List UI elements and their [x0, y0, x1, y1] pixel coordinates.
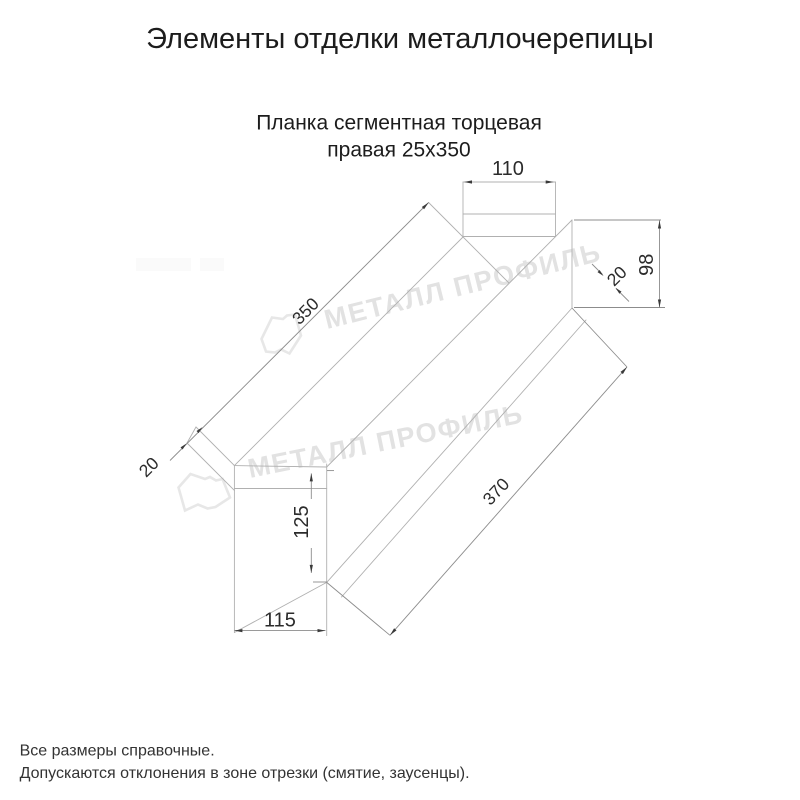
svg-text:Допускаются отклонения в зоне: Допускаются отклонения в зоне отрезки (с… [20, 765, 470, 782]
svg-text:98: 98 [636, 254, 658, 276]
svg-text:Все размеры справочные.: Все размеры справочные. [20, 743, 215, 760]
svg-text:Элементы отделки металлочерепи: Элементы отделки металлочерепицы [146, 23, 654, 55]
svg-text:125: 125 [291, 505, 313, 538]
svg-text:правая 25х350: правая 25х350 [327, 139, 470, 162]
svg-text:115: 115 [264, 610, 296, 632]
svg-text:Планка сегментная торцевая: Планка сегментная торцевая [256, 112, 542, 135]
svg-text:110: 110 [492, 158, 524, 180]
